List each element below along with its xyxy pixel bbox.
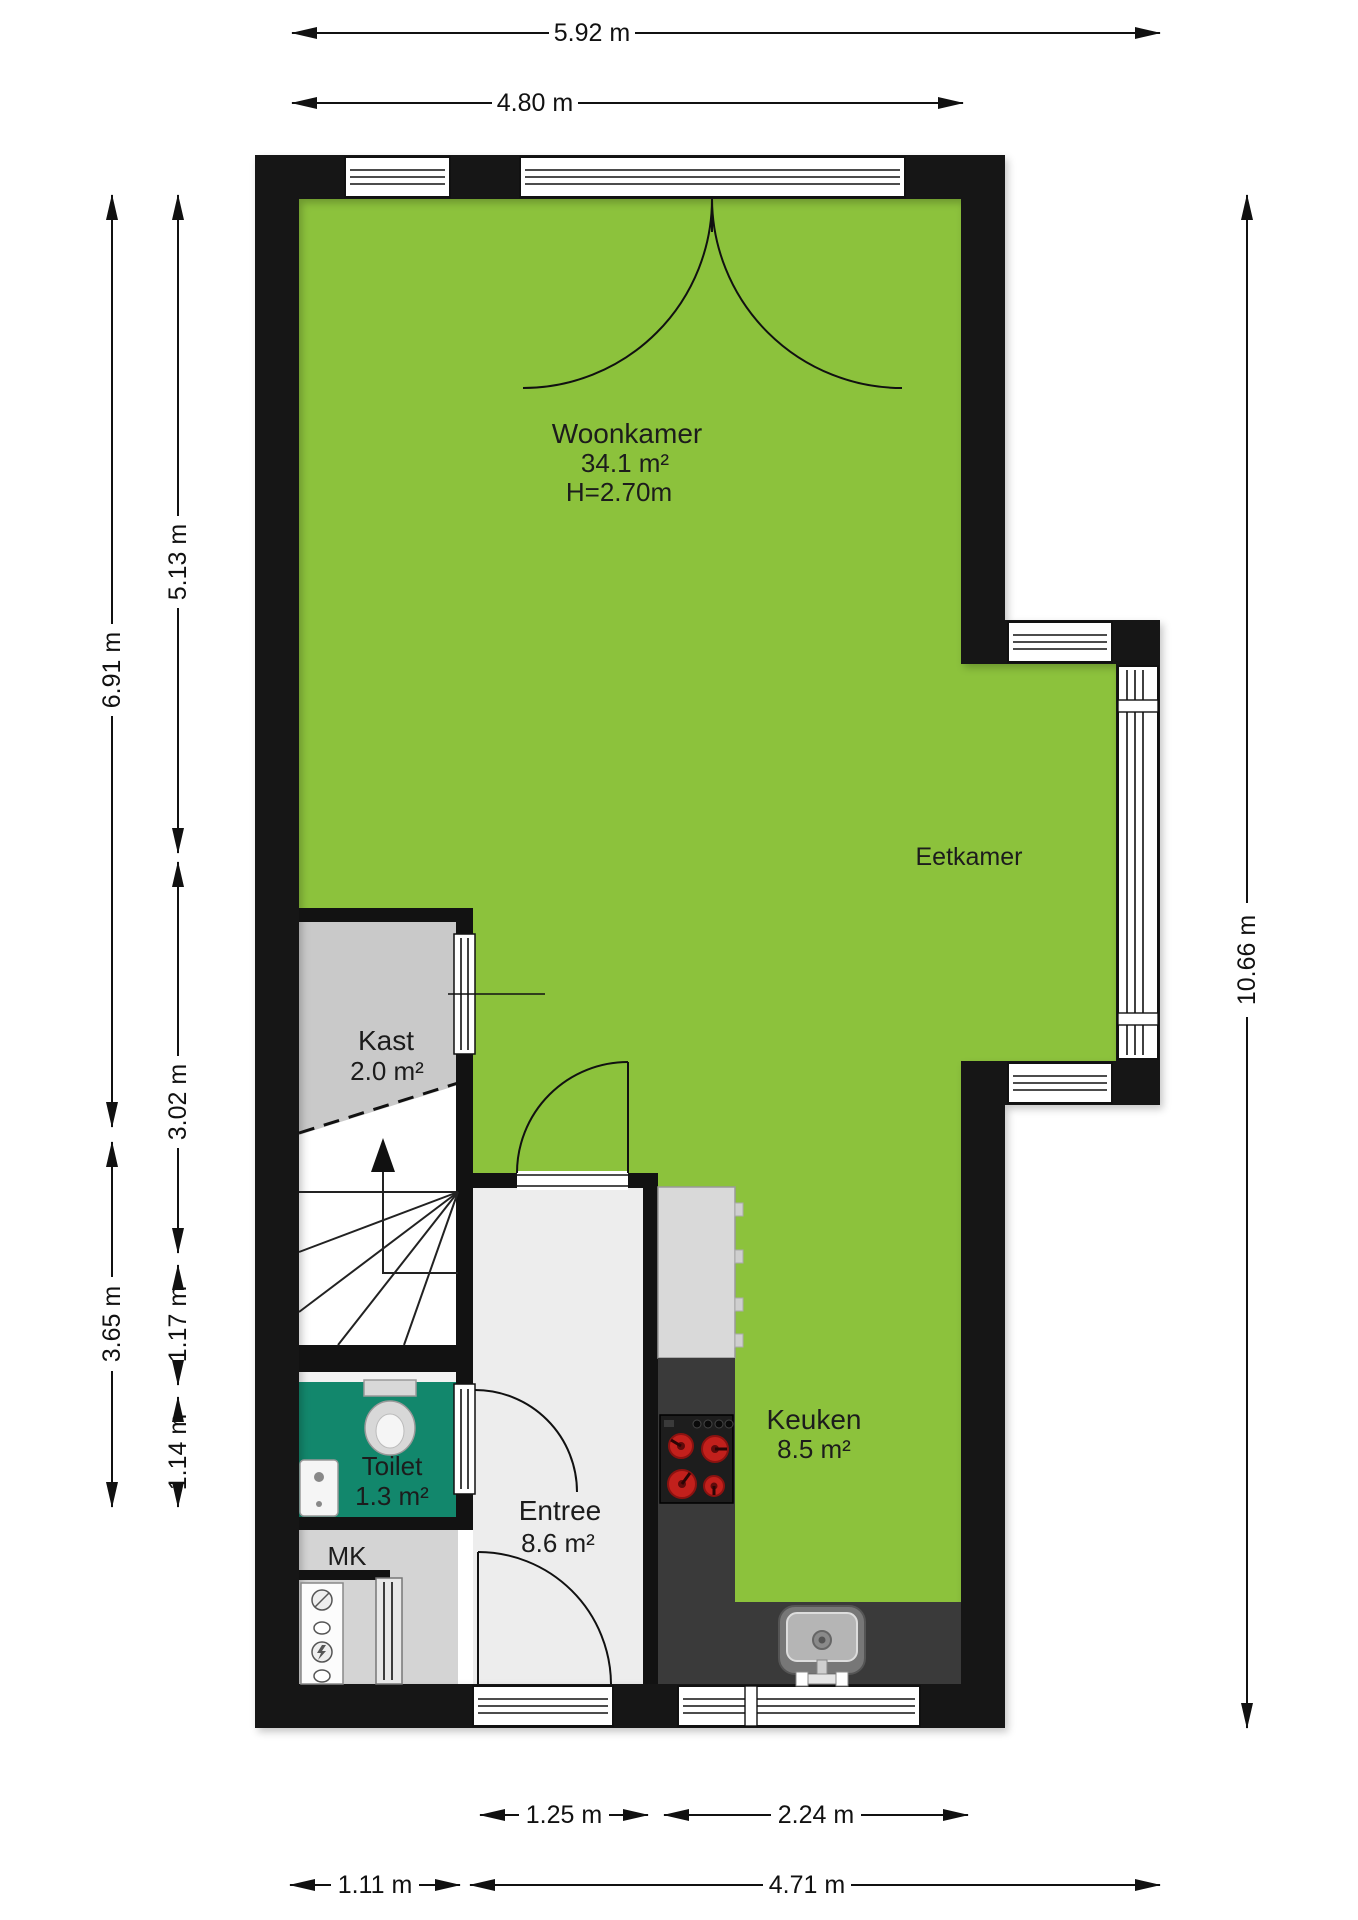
keuken-area: 8.5 m²	[777, 1434, 851, 1464]
stove	[660, 1415, 733, 1503]
floorplan-page: Woonkamer 34.1 m² H=2.70m Eetkamer Kast …	[0, 0, 1358, 1920]
cabinet-handle	[735, 1334, 743, 1347]
wall-right-lower	[961, 1061, 1005, 1728]
toilet-bottom-wall	[299, 1517, 473, 1530]
svg-text:5.13 m: 5.13 m	[164, 524, 192, 600]
svg-text:3.65 m: 3.65 m	[98, 1286, 126, 1362]
dim-bottom-kitchen: 2.24 m	[664, 1801, 968, 1829]
toilet-area: 1.3 m²	[355, 1481, 429, 1511]
dim-bottom-door: 1.25 m	[480, 1801, 648, 1829]
kitchen-window	[678, 1686, 920, 1726]
svg-text:1.17 m: 1.17 m	[164, 1286, 192, 1362]
burner	[669, 1434, 693, 1458]
svg-text:3.02 m: 3.02 m	[164, 1064, 192, 1140]
kitchen-sink	[779, 1606, 865, 1686]
entree-floor	[473, 1188, 643, 1684]
woonkamer-label: Woonkamer	[552, 418, 702, 449]
svg-text:5.92 m: 5.92 m	[554, 19, 630, 47]
toilet-label: Toilet	[362, 1451, 423, 1481]
dim-bottom-left: 1.11 m	[290, 1871, 460, 1899]
cabinet-handle	[735, 1250, 743, 1263]
svg-text:4.71 m: 4.71 m	[769, 1871, 845, 1899]
toilet-sink	[300, 1460, 338, 1516]
floorplan-svg: Woonkamer 34.1 m² H=2.70m Eetkamer Kast …	[0, 0, 1358, 1920]
mk-meter-panel	[301, 1583, 343, 1684]
bay-window-right	[1118, 666, 1158, 1059]
dim-top-total: 5.92 m	[292, 19, 1160, 47]
burner	[702, 1436, 728, 1462]
dim-left-mid-inner: 3.02 m	[164, 862, 192, 1253]
svg-text:10.66 m: 10.66 m	[1233, 915, 1261, 1005]
svg-text:6.91 m: 6.91 m	[98, 632, 126, 708]
svg-text:4.80 m: 4.80 m	[497, 89, 573, 117]
dim-left-lower-outer: 3.65 m	[98, 1142, 126, 1507]
meter-icon	[314, 1670, 330, 1682]
kast-top-wall	[299, 908, 473, 922]
kitchen-cabinet-upper	[658, 1187, 735, 1358]
entree-right-wall	[643, 1173, 658, 1684]
burner	[704, 1476, 724, 1496]
burner	[668, 1470, 696, 1498]
svg-text:1.25 m: 1.25 m	[526, 1801, 602, 1829]
dim-left-mk-inner: 1.14 m	[164, 1397, 192, 1507]
kast-label: Kast	[358, 1025, 414, 1056]
dim-top-main: 4.80 m	[292, 89, 963, 117]
mk-label: MK	[328, 1541, 368, 1571]
cabinet-handle	[735, 1203, 743, 1216]
eetkamer-label: Eetkamer	[916, 843, 1023, 871]
window-top-left	[345, 157, 450, 197]
woonkamer-ceiling-height: H=2.70m	[566, 477, 672, 507]
stairs-bottom-wall	[299, 1345, 473, 1372]
dim-right-total: 10.66 m	[1233, 195, 1261, 1728]
woonkamer-area: 34.1 m²	[581, 448, 669, 478]
dim-left-upper-inner: 5.13 m	[164, 195, 192, 853]
keuken-label: Keuken	[767, 1404, 862, 1435]
meter-icon	[314, 1622, 330, 1634]
toilet-bowl	[364, 1380, 416, 1455]
wall-left	[255, 155, 299, 1728]
entree-label: Entree	[519, 1495, 602, 1526]
wall-right-upper	[961, 155, 1005, 664]
bay-window-top	[1008, 622, 1112, 662]
dim-bottom-main: 4.71 m	[470, 1871, 1160, 1899]
dim-left-upper-outer: 6.91 m	[98, 195, 126, 1127]
bay-window-bottom	[1008, 1063, 1112, 1103]
svg-text:1.14 m: 1.14 m	[164, 1414, 192, 1490]
svg-text:2.24 m: 2.24 m	[778, 1801, 854, 1829]
kast-area: 2.0 m²	[350, 1056, 424, 1086]
dim-left-toilet-inner: 1.17 m	[164, 1265, 192, 1385]
svg-text:1.11 m: 1.11 m	[338, 1871, 413, 1899]
entree-area: 8.6 m²	[521, 1528, 595, 1558]
mk-door	[376, 1578, 402, 1684]
cabinet-handle	[735, 1298, 743, 1311]
